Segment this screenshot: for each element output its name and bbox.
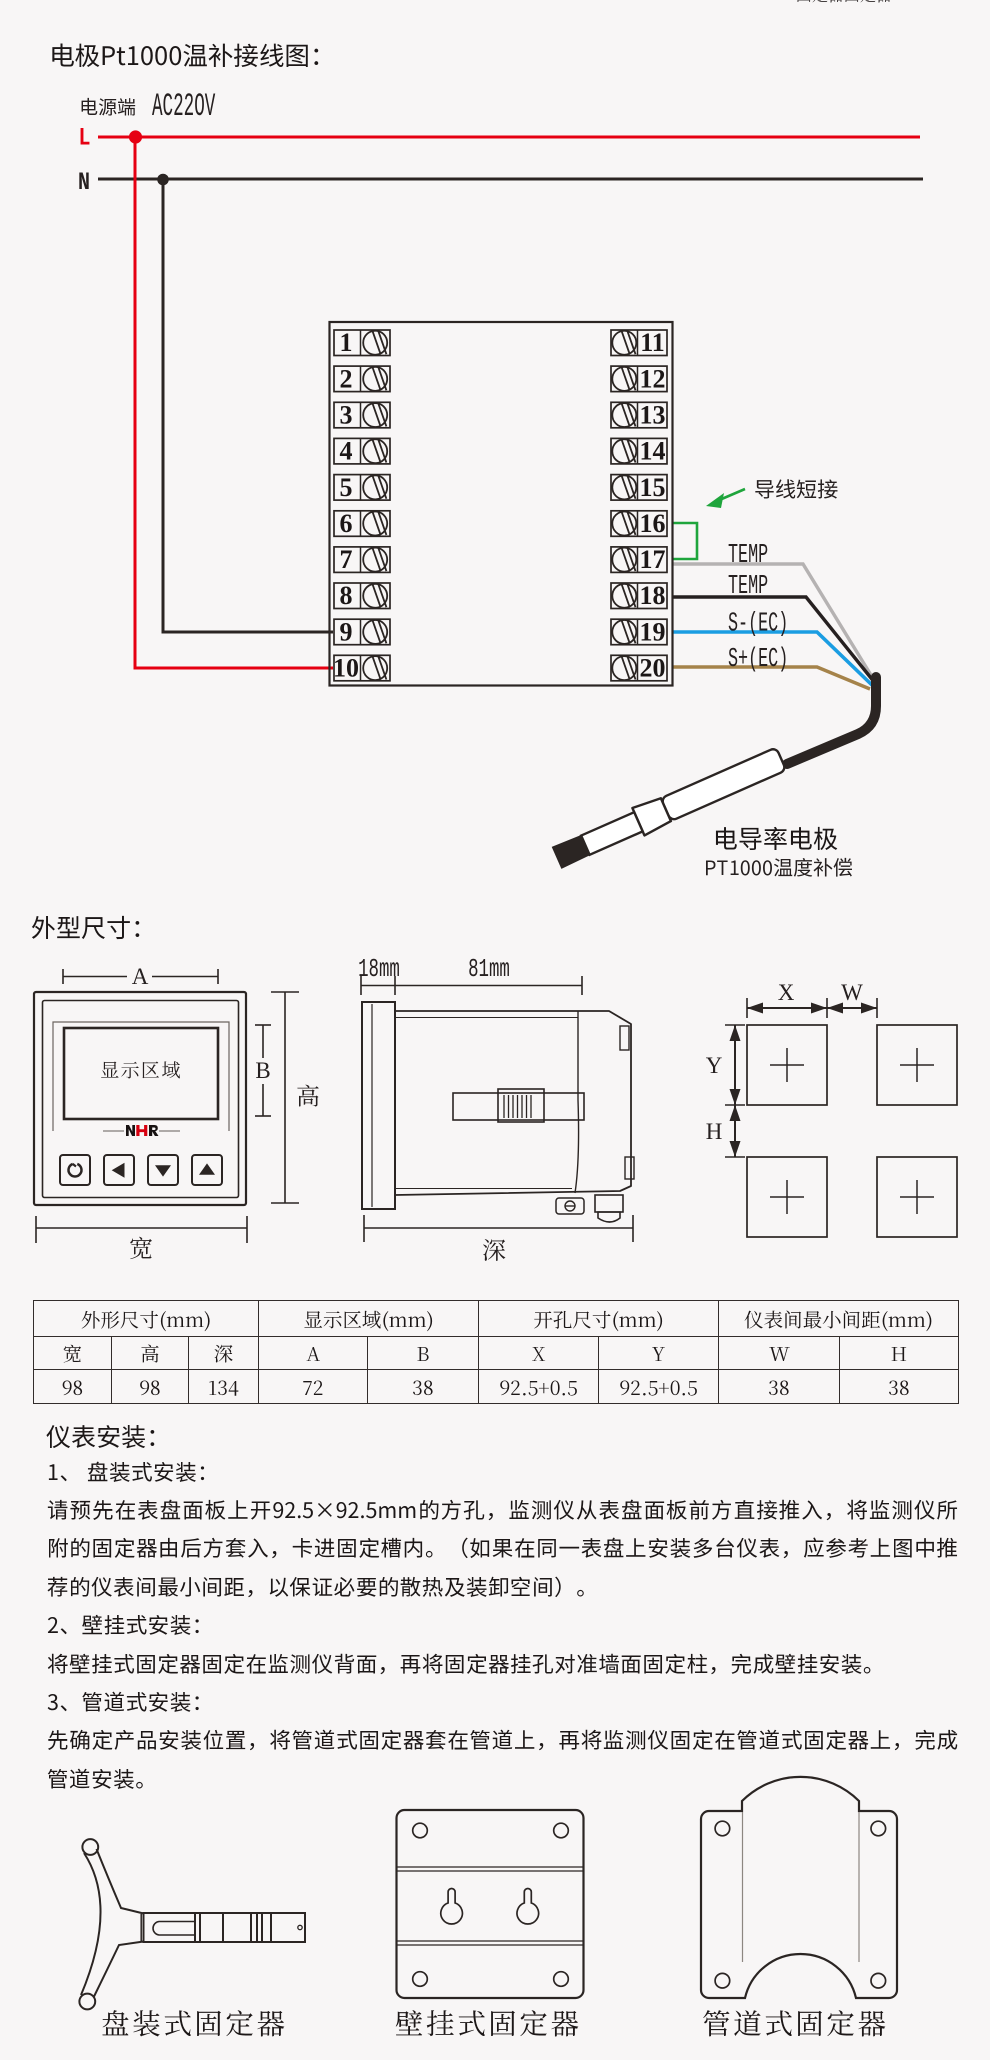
svg-text:1: 1	[340, 328, 353, 357]
svg-text:19: 19	[640, 617, 666, 646]
svg-text:宽: 宽	[129, 1229, 153, 1264]
svg-text:W: W	[841, 980, 863, 1005]
svg-text:10: 10	[333, 654, 359, 683]
svg-text:18mm: 18mm	[358, 955, 400, 984]
svg-text:TEMP: TEMP	[728, 570, 768, 601]
svg-text:N: N	[78, 168, 90, 197]
svg-text:16: 16	[640, 509, 666, 538]
svg-text:12: 12	[640, 364, 666, 393]
svg-text:TEMP: TEMP	[728, 539, 768, 570]
svg-text:A: A	[132, 964, 149, 989]
svg-text:电导率电极: 电导率电极	[713, 820, 838, 856]
svg-text:深: 深	[482, 1231, 506, 1266]
svg-text:3: 3	[340, 400, 353, 429]
svg-text:B: B	[255, 1058, 270, 1083]
svg-text:AC22OV: AC22OV	[152, 89, 216, 125]
svg-text:20: 20	[640, 654, 666, 683]
svg-text:17: 17	[640, 545, 666, 574]
svg-text:81mm: 81mm	[468, 955, 510, 984]
svg-text:14: 14	[640, 437, 666, 466]
svg-text:6: 6	[340, 509, 353, 538]
svg-text:Y: Y	[706, 1053, 723, 1078]
svg-text:PT1000温度补偿: PT1000温度补偿	[704, 852, 853, 881]
svg-text:9: 9	[340, 617, 353, 646]
svg-text:S+(EC): S+(EC)	[728, 643, 788, 674]
svg-text:导线短接: 导线短接	[754, 474, 838, 504]
svg-text:7: 7	[340, 545, 353, 574]
svg-text:显示区域: 显示区域	[100, 1056, 182, 1083]
svg-text:4: 4	[340, 437, 353, 466]
svg-text:15: 15	[640, 473, 666, 502]
svg-text:18: 18	[640, 581, 666, 610]
svg-text:8: 8	[340, 581, 353, 610]
svg-text:13: 13	[640, 400, 666, 429]
svg-text:H: H	[706, 1119, 723, 1144]
svg-text:S-(EC): S-(EC)	[728, 608, 788, 639]
svg-text:电源端: 电源端	[79, 93, 136, 120]
svg-text:L: L	[79, 124, 91, 153]
svg-text:高: 高	[296, 1077, 320, 1112]
svg-text:11: 11	[640, 328, 665, 357]
svg-text:5: 5	[340, 473, 353, 502]
svg-text:2: 2	[340, 364, 353, 393]
svg-text:X: X	[778, 980, 795, 1005]
